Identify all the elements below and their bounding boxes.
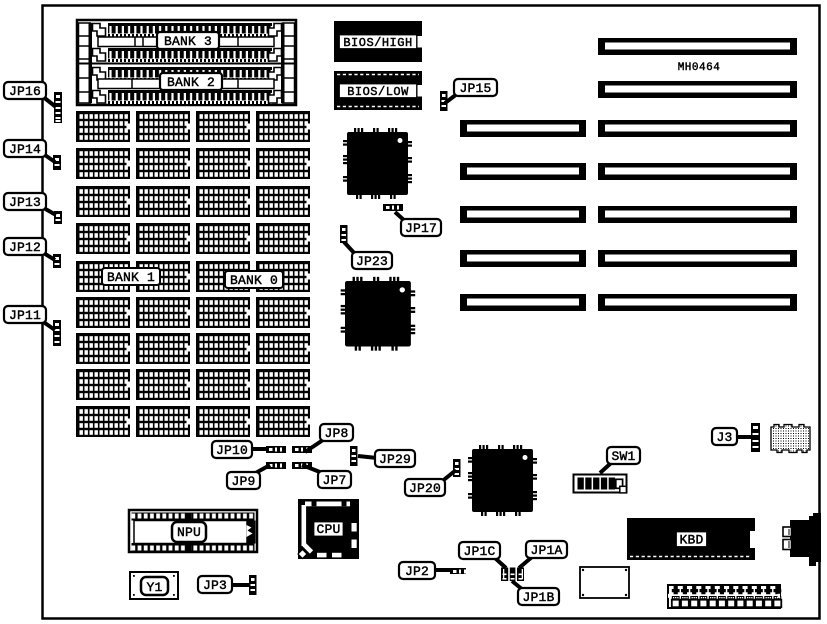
svg-text:JP1B: JP1B [522, 590, 554, 605]
svg-text:JP17: JP17 [405, 221, 437, 236]
svg-text:JP9: JP9 [231, 474, 255, 489]
svg-text:JP14: JP14 [9, 142, 41, 157]
svg-text:JP3: JP3 [203, 578, 227, 593]
svg-text:JP8: JP8 [324, 426, 348, 441]
svg-text:JP16: JP16 [9, 84, 41, 99]
svg-text:CPU: CPU [316, 522, 340, 537]
svg-text:SW1: SW1 [611, 449, 635, 464]
svg-text:JP10: JP10 [216, 443, 248, 458]
svg-text:JP1A: JP1A [530, 543, 562, 558]
svg-text:MH0464: MH0464 [678, 62, 721, 74]
svg-text:BANK 0: BANK 0 [230, 273, 278, 288]
svg-text:NPU: NPU [177, 525, 201, 540]
svg-text:BIOS/HIGH: BIOS/HIGH [343, 36, 412, 50]
svg-text:JP11: JP11 [9, 308, 41, 323]
svg-text:JP23: JP23 [356, 254, 388, 269]
svg-text:KBD: KBD [679, 533, 703, 548]
svg-text:BANK 1: BANK 1 [107, 270, 155, 285]
svg-text:J3: J3 [716, 430, 732, 445]
svg-text:JP15: JP15 [459, 81, 491, 96]
svg-text:JP12: JP12 [9, 240, 41, 255]
svg-text:JP29: JP29 [379, 452, 411, 467]
svg-text:BANK 2: BANK 2 [167, 75, 215, 90]
svg-text:JP7: JP7 [322, 473, 346, 488]
svg-text:JP2: JP2 [405, 564, 429, 579]
svg-text:BIOS/LOW: BIOS/LOW [347, 85, 409, 99]
svg-text:JP13: JP13 [9, 195, 41, 210]
svg-text:JP20: JP20 [409, 481, 441, 496]
svg-text:JP1C: JP1C [463, 544, 495, 559]
svg-text:Y1: Y1 [146, 580, 162, 595]
svg-text:BANK 3: BANK 3 [164, 34, 212, 49]
